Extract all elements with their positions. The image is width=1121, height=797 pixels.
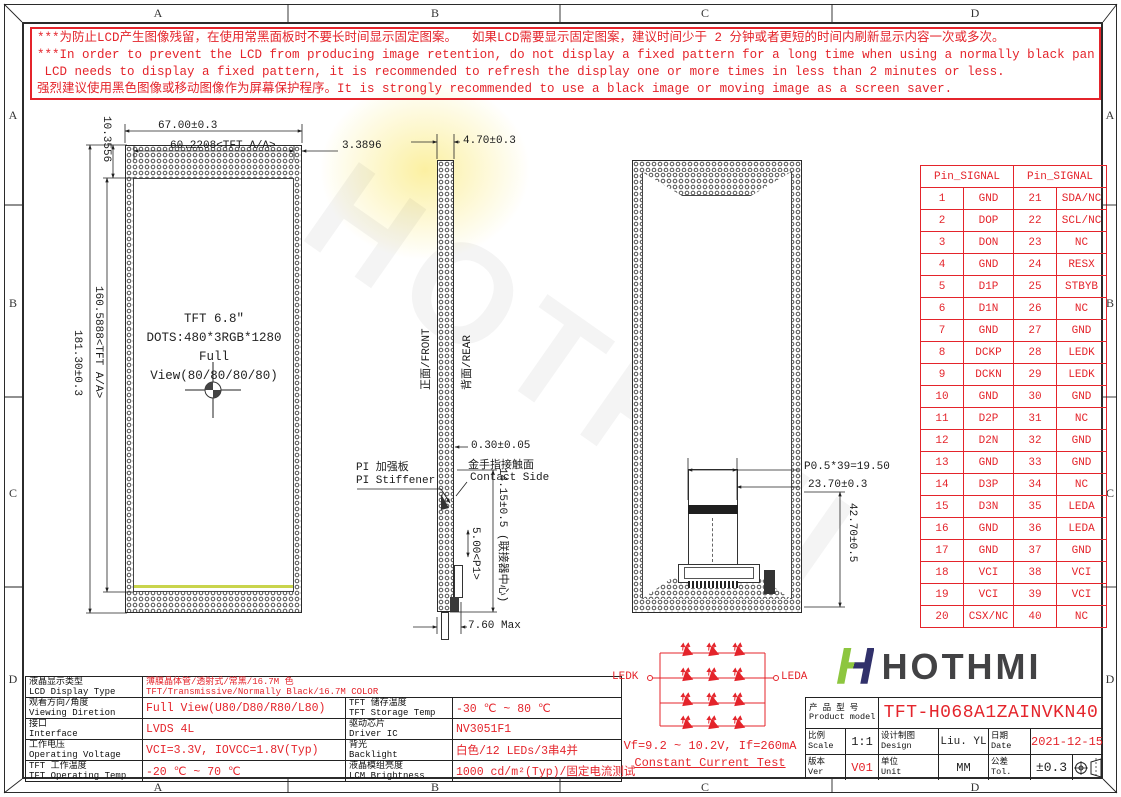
pin-signal-cell: GND (964, 320, 1014, 342)
pin-table-row: 2DOP22SCL/NC (921, 210, 1107, 232)
grid-letter-top-c: C (695, 6, 715, 21)
grid-letter-left-d: D (3, 672, 23, 687)
dim-pitch: 5.00<P1> (469, 527, 481, 580)
pin-signal-cell: DCKP (964, 342, 1014, 364)
pin-number-cell: 40 (1014, 606, 1057, 628)
warning-line-cn-2: 强烈建议使用黑色图像或移动图像作为屏幕保护程序。It is strongly r… (37, 81, 1094, 98)
spec-row-viewing: 观看方向/角度Viewing Diretion Full View(U80/D8… (26, 698, 622, 719)
pin-number-cell: 33 (1014, 452, 1057, 474)
pin-signal-cell: DOP (964, 210, 1014, 232)
grid-letter-top-d: D (965, 6, 985, 21)
pin-number-cell: 6 (921, 298, 964, 320)
side-view-stiffener (454, 565, 463, 598)
pin-signal-cell: GND (1057, 452, 1107, 474)
company-logo: H HOTHMI (836, 641, 1042, 693)
dim-offset-top: 10.3556 (100, 116, 112, 162)
spec-row-interface: 接口Interface LVDS 4L 驱动芯片Driver IC NV3051… (26, 719, 622, 740)
leda-label: LEDA (781, 671, 807, 683)
pin-signal-cell: GND (964, 254, 1014, 276)
spec-table: 液晶显示类型 LCD Display Type 薄膜晶体管/透射式/常黑/16.… (25, 676, 622, 782)
hothmi-logo-icon: H (836, 641, 874, 693)
image-retention-warning: ***为防止LCD产生图像残留，在使用常黑面板时不要长时间显示固定图案。 如果L… (30, 27, 1101, 100)
pin-signal-cell: NC (1057, 232, 1107, 254)
pin-table-row: 10GND30GND (921, 386, 1107, 408)
pin-table-row: 9DCKN29LEDK (921, 364, 1107, 386)
led-test-text: Constant Current Test (620, 756, 800, 770)
pin-signal-cell: SDA/NC (1057, 188, 1107, 210)
warning-line-en-2: LCD needs to display a fixed pattern, it… (37, 64, 1094, 81)
grid-letter-bottom-d: D (965, 780, 985, 795)
pin-number-cell: 24 (1014, 254, 1057, 276)
pin-signal-cell: D2P (964, 408, 1014, 430)
pin-number-cell: 8 (921, 342, 964, 364)
pin-signal-cell: GND (964, 386, 1014, 408)
pin-number-cell: 21 (1014, 188, 1057, 210)
product-model-label: 产 品 型 号Product model (806, 698, 879, 729)
pin-signal-cell: D1P (964, 276, 1014, 298)
pin-number-cell: 20 (921, 606, 964, 628)
pin-signal-cell: GND (1057, 320, 1107, 342)
tolerance-label: 公差Tol. (989, 755, 1031, 780)
pin-signal-cell: D3N (964, 496, 1014, 518)
rear-gold-fingers (688, 581, 738, 588)
pin-number-cell: 28 (1014, 342, 1057, 364)
pin-signal-cell: VCI (964, 562, 1014, 584)
pin-table-row: 19VCI39VCI (921, 584, 1107, 606)
pin-table-row: 8DCKP28LEDK (921, 342, 1107, 364)
pin-table-header-left: Pin_SIGNAL (921, 166, 1014, 188)
pin-number-cell: 15 (921, 496, 964, 518)
polarizer-edge-strip (134, 585, 293, 588)
scale-value: 1:1 (846, 729, 879, 755)
pin-signal-table: Pin_SIGNAL Pin_SIGNAL 1GND21SDA/NC2DOP22… (920, 165, 1107, 628)
pin-number-cell: 35 (1014, 496, 1057, 518)
spec-row-temp: TFT 工作温度TFT Operating Temp -20 ℃ ~ 70 ℃ … (26, 761, 622, 782)
pin-table-row: 6D1N26NC (921, 298, 1107, 320)
grid-letter-left-c: C (3, 486, 23, 501)
pin-number-cell: 39 (1014, 584, 1057, 606)
pin-number-cell: 12 (921, 430, 964, 452)
pin-table-row: 5D1P25STBYB (921, 276, 1107, 298)
stiffener-label-en: PI Stiffener (356, 475, 435, 487)
pin-signal-cell: NC (1057, 298, 1107, 320)
dim-thickness: 4.70±0.3 (463, 135, 516, 147)
pin-table-row: 14D3P34NC (921, 474, 1107, 496)
spec-value-interface: LVDS 4L (143, 719, 346, 740)
front-view-labels: TFT 6.8″ DOTS:480*3RGB*1280 Full View(80… (133, 310, 295, 386)
pin-signal-cell: GND (1057, 430, 1107, 452)
pin-signal-cell: LEDK (1057, 342, 1107, 364)
dim-width-aa: 60.2208<TFT A/A> (170, 140, 276, 152)
dim-width-outer: 67.00±0.3 (158, 120, 217, 132)
pin-table-row: 17GND37GND (921, 540, 1107, 562)
pin-number-cell: 19 (921, 584, 964, 606)
pin-table-row: 16GND36LEDA (921, 518, 1107, 540)
design-value: Liu. YL (939, 729, 989, 755)
pin-signal-cell: LEDK (1057, 364, 1107, 386)
led-vf-text: Vf=9.2 ~ 10.2V, If=260mA (620, 739, 800, 753)
spec-value-viewing: Full View(U80/D80/R80/L80) (143, 698, 346, 719)
dim-fpc-pitch: P0.5*39=19.50 (804, 461, 890, 473)
pin-table-body: 1GND21SDA/NC2DOP22SCL/NC3DON23NC4GND24RE… (921, 188, 1107, 628)
spec-value-display-type: 薄膜晶体管/透射式/常黑/16.7M 色 TFT/Transmissive/No… (143, 677, 622, 698)
dim-offset-right: 3.3896 (342, 140, 382, 152)
scale-label: 比例Scale (806, 729, 846, 755)
pin-signal-cell: NC (1057, 408, 1107, 430)
pin-signal-cell: VCI (1057, 562, 1107, 584)
date-label: 日期Date (989, 729, 1031, 755)
pin-number-cell: 13 (921, 452, 964, 474)
pin-signal-cell: SCL/NC (1057, 210, 1107, 232)
pin-signal-cell: NC (1057, 474, 1107, 496)
third-angle-projection-icon (1074, 756, 1103, 780)
spec-value-driver-ic: NV3051F1 (453, 719, 622, 740)
rear-fpc-band (688, 505, 738, 514)
spec-row-voltage: 工作电压Operating Voltage VCI=3.3V, IOVCC=1.… (26, 740, 622, 761)
grid-letter-bottom-c: C (695, 780, 715, 795)
version-label: 版本Ver (806, 755, 846, 780)
dim-fpc-thickness: 0.30±0.05 (471, 440, 530, 452)
pin-number-cell: 4 (921, 254, 964, 276)
pin-signal-cell: VCI (964, 584, 1014, 606)
pin-signal-cell: LEDA (1057, 496, 1107, 518)
pin-table-row: 4GND24RESX (921, 254, 1107, 276)
pin-number-cell: 31 (1014, 408, 1057, 430)
pin-table-row: 18VCI38VCI (921, 562, 1107, 584)
spec-value-operating-temp: -20 ℃ ~ 70 ℃ (143, 761, 346, 782)
ledk-label: LEDK (612, 671, 638, 683)
pin-signal-cell: DON (964, 232, 1014, 254)
pin-signal-cell: LEDA (1057, 518, 1107, 540)
pin-signal-cell: GND (964, 540, 1014, 562)
hothmi-logo-text: HOTHMI (882, 641, 1042, 693)
pin-signal-cell: D2N (964, 430, 1014, 452)
side-view-fpc-tail (441, 612, 449, 640)
dim-connector-center: 14.15±0.5 (联接器中心) (496, 468, 512, 602)
rear-fpc-body (688, 469, 738, 566)
pin-number-cell: 25 (1014, 276, 1057, 298)
product-model-value: TFT-H068A1ZAINVKN40 (879, 698, 1103, 729)
pin-table-row: 12D2N32GND (921, 430, 1107, 452)
panel-view-label: Full View(80/80/80/80) (133, 348, 295, 386)
panel-size-label: TFT 6.8″ (133, 310, 295, 329)
pin-table-row: 13GND33GND (921, 452, 1107, 474)
pin-signal-cell: D1N (964, 298, 1014, 320)
pin-number-cell: 30 (1014, 386, 1057, 408)
pin-signal-cell: RESX (1057, 254, 1107, 276)
date-value: 2021-12-15 (1031, 729, 1103, 755)
pin-table-header-row: Pin_SIGNAL Pin_SIGNAL (921, 166, 1107, 188)
projection-symbol (1073, 755, 1103, 780)
spec-label-display-type: 液晶显示类型 LCD Display Type (26, 677, 143, 698)
rear-fpc-centerline (712, 518, 713, 562)
side-view-drawing (437, 160, 454, 612)
pin-number-cell: 5 (921, 276, 964, 298)
design-label: 设计制图Design (879, 729, 939, 755)
version-value: V01 (846, 755, 879, 780)
pin-signal-cell: STBYB (1057, 276, 1107, 298)
pin-number-cell: 1 (921, 188, 964, 210)
side-view-connector-bump (450, 597, 459, 612)
pin-number-cell: 22 (1014, 210, 1057, 232)
pin-number-cell: 36 (1014, 518, 1057, 540)
spec-row-display-type: 液晶显示类型 LCD Display Type 薄膜晶体管/透射式/常黑/16.… (26, 677, 622, 698)
unit-label: 单位Unit (879, 755, 939, 780)
spec-value-storage-temp: -30 ℃ ~ 80 ℃ (453, 698, 622, 719)
datasheet-page: HOTHMI A B C D A B C D A B C D A B C D *… (0, 0, 1121, 797)
rear-side-label: 背面/REAR (458, 335, 474, 390)
pin-number-cell: 9 (921, 364, 964, 386)
grid-letter-top-b: B (425, 6, 445, 21)
pin-table-row: 3DON23NC (921, 232, 1107, 254)
rear-ic-chip (764, 570, 775, 594)
grid-letter-right-d: D (1100, 672, 1120, 687)
grid-letter-left-a: A (3, 108, 23, 123)
pin-number-cell: 14 (921, 474, 964, 496)
dim-fpc-length: 42.70±0.5 (846, 503, 858, 562)
grid-letter-top-a: A (148, 6, 168, 21)
pin-signal-cell: GND (1057, 386, 1107, 408)
panel-dots-label: DOTS:480*3RGB*1280 (133, 329, 295, 348)
pin-table-header-right: Pin_SIGNAL (1014, 166, 1107, 188)
pin-number-cell: 29 (1014, 364, 1057, 386)
pin-signal-cell: GND (964, 452, 1014, 474)
grid-letter-bottom-a: A (148, 780, 168, 795)
pin-number-cell: 23 (1014, 232, 1057, 254)
pin-signal-cell: CSX/NC (964, 606, 1014, 628)
pin-number-cell: 16 (921, 518, 964, 540)
pin-number-cell: 3 (921, 232, 964, 254)
pin-table-row: 7GND27GND (921, 320, 1107, 342)
pin-number-cell: 2 (921, 210, 964, 232)
warning-line-en-1: ***In order to prevent the LCD from prod… (37, 47, 1094, 64)
pin-signal-cell: GND (1057, 540, 1107, 562)
dim-height-aa: 160.5888<TFT A/A> (92, 286, 104, 398)
grid-letter-bottom-b: B (425, 780, 445, 795)
pin-signal-cell: GND (964, 518, 1014, 540)
pin-number-cell: 27 (1014, 320, 1057, 342)
pin-number-cell: 37 (1014, 540, 1057, 562)
tolerance-value: ±0.3 (1031, 755, 1073, 780)
pin-signal-cell: VCI (1057, 584, 1107, 606)
spec-value-brightness: 1000 cd/m²(Typ)/固定电流测试 (453, 761, 622, 782)
pin-table-row: 1GND21SDA/NC (921, 188, 1107, 210)
pin-number-cell: 38 (1014, 562, 1057, 584)
pin-number-cell: 26 (1014, 298, 1057, 320)
spec-value-voltage: VCI=3.3V, IOVCC=1.8V(Typ) (143, 740, 346, 761)
dim-height-outer: 181.30±0.3 (71, 330, 83, 396)
pin-number-cell: 34 (1014, 474, 1057, 496)
grid-letter-right-a: A (1100, 108, 1120, 123)
pin-signal-cell: GND (964, 188, 1014, 210)
dim-max-height: 7.60 Max (468, 620, 521, 632)
title-block: 产 品 型 号Product model TFT-H068A1ZAINVKN40… (805, 697, 1103, 779)
pin-table-row: 15D3N35LEDA (921, 496, 1107, 518)
rear-connector-inner (684, 567, 754, 579)
pin-signal-cell: NC (1057, 606, 1107, 628)
pin-number-cell: 18 (921, 562, 964, 584)
grid-letter-left-b: B (3, 296, 23, 311)
warning-line-cn-1: ***为防止LCD产生图像残留，在使用常黑面板时不要长时间显示固定图案。 如果L… (37, 30, 1094, 47)
pin-table-row: 20CSX/NC40NC (921, 606, 1107, 628)
pin-number-cell: 17 (921, 540, 964, 562)
pin-number-cell: 32 (1014, 430, 1057, 452)
pin-number-cell: 11 (921, 408, 964, 430)
pin-table-row: 11D2P31NC (921, 408, 1107, 430)
pin-signal-cell: D3P (964, 474, 1014, 496)
pin-signal-cell: DCKN (964, 364, 1014, 386)
pin-number-cell: 7 (921, 320, 964, 342)
unit-value: MM (939, 755, 989, 780)
front-side-label: 正面/FRONT (417, 328, 433, 390)
stiffener-label-cn: PI 加强板 (356, 458, 409, 474)
spec-value-backlight: 白色/12 LEDs/3串4并 (453, 740, 622, 761)
dim-fpc-width: 23.70±0.3 (808, 479, 867, 491)
pin-number-cell: 10 (921, 386, 964, 408)
